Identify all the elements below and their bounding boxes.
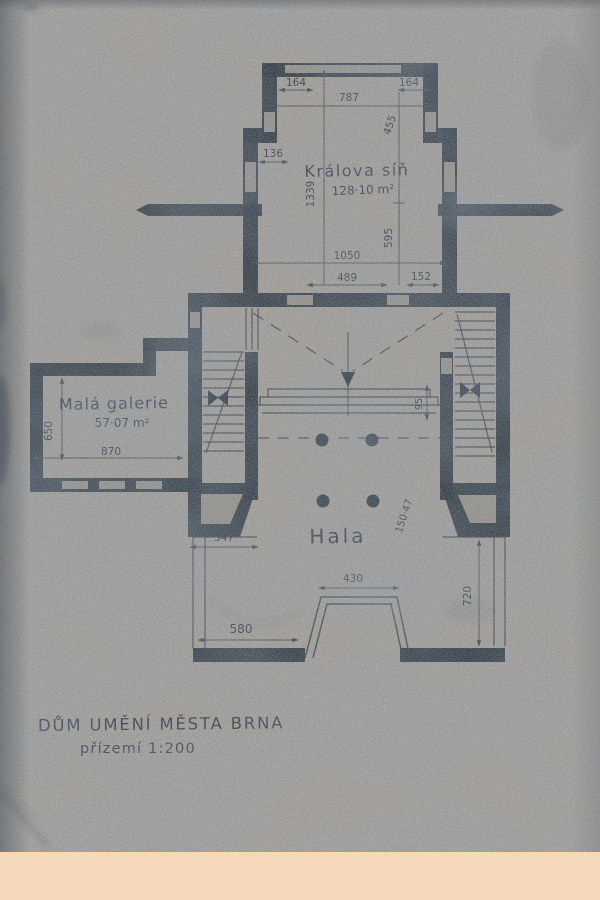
vignette-top — [0, 0, 600, 10]
vignette-right — [572, 0, 600, 852]
floor-plan-canvas: Králova síň 128·10 m² 164 787 164 455 13… — [0, 0, 600, 900]
photostat-page: Králova síň 128·10 m² 164 787 164 455 13… — [0, 0, 600, 900]
paper-bottom-band — [0, 852, 600, 900]
vignette-left — [0, 0, 30, 852]
texture-grain-light — [0, 0, 600, 852]
